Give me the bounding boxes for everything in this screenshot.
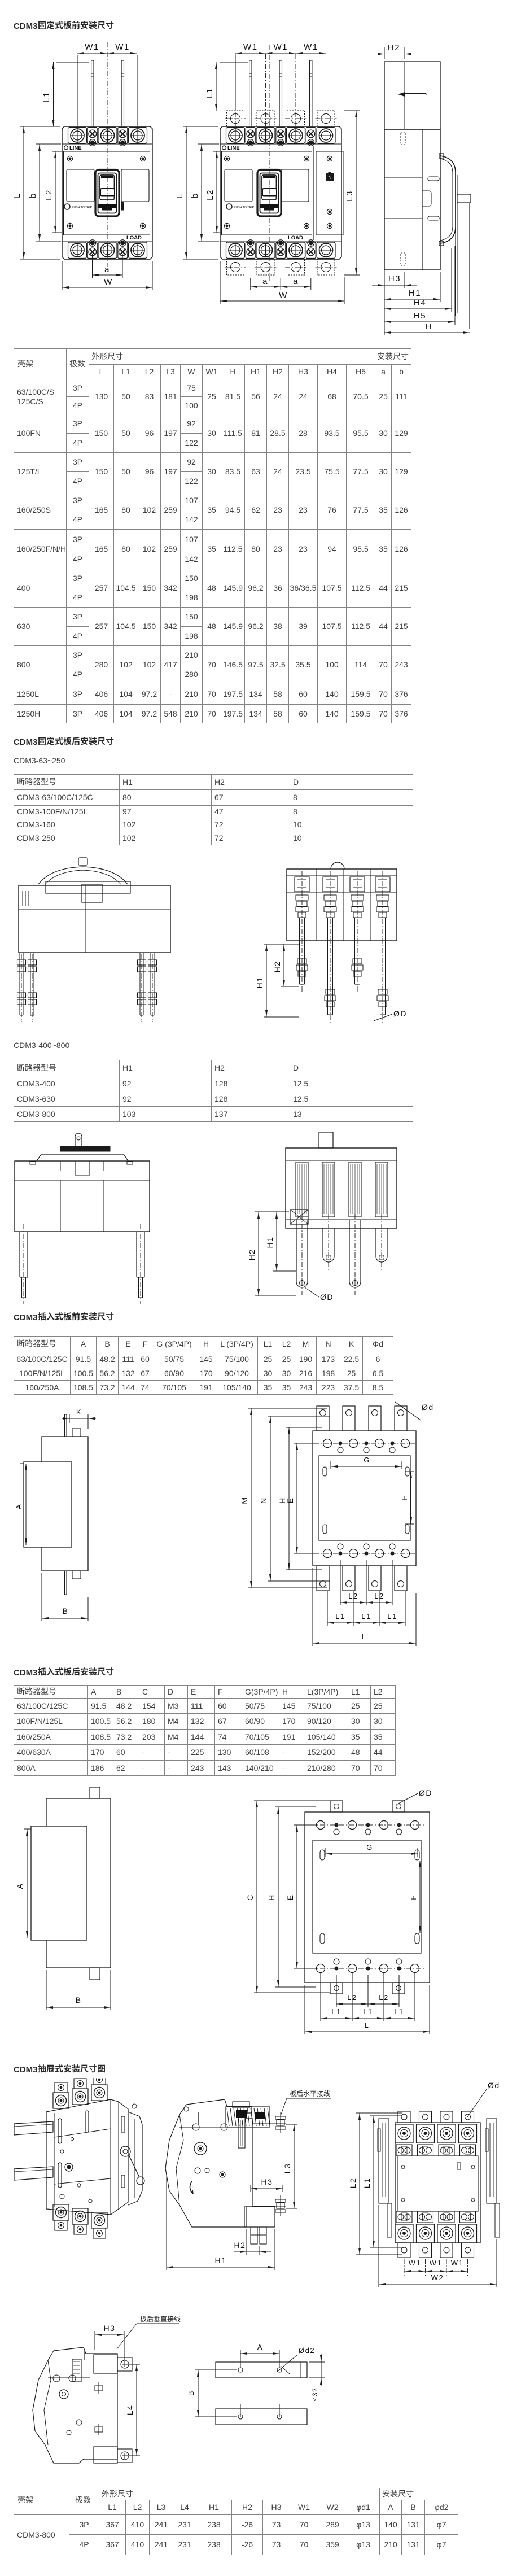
svg-text:K: K [76, 1408, 82, 1416]
svg-text:B: B [76, 1996, 82, 2005]
svg-text:W: W [104, 277, 113, 287]
svg-text:H2: H2 [388, 43, 400, 53]
svg-text:B: B [63, 1606, 69, 1616]
svg-text:L1: L1 [363, 2007, 373, 2016]
svg-text:W2: W2 [431, 2273, 444, 2282]
svg-text:W1: W1 [304, 42, 318, 52]
svg-text:L1: L1 [387, 1612, 397, 1621]
svg-text:LOAD: LOAD [126, 235, 142, 241]
svg-text:N: N [259, 1497, 268, 1504]
svg-text:L: L [12, 193, 22, 198]
svg-text:H3: H3 [104, 2324, 116, 2333]
svg-text:H1: H1 [409, 289, 421, 298]
svg-text:Ød: Ød [422, 1403, 434, 1412]
svg-text:Ød: Ød [488, 2081, 500, 2090]
svg-text:H: H [267, 1894, 276, 1901]
svg-text:ØD: ØD [393, 1009, 407, 1018]
svg-text:L: L [175, 193, 185, 198]
svg-text:L1: L1 [362, 2178, 371, 2189]
svg-text:L3: L3 [283, 2163, 292, 2174]
svg-text:W1: W1 [243, 42, 258, 52]
svg-text:L1: L1 [394, 2007, 404, 2016]
svg-text:a: a [104, 265, 110, 274]
svg-text:F: F [400, 1495, 409, 1500]
svg-text:a: a [293, 277, 299, 286]
svg-text:H2: H2 [247, 1249, 256, 1261]
svg-text:H1: H1 [215, 2256, 227, 2265]
svg-text:L1: L1 [331, 2007, 341, 2016]
svg-text:N: N [329, 175, 332, 180]
svg-text:PUSH TO TRIP: PUSH TO TRIP [72, 206, 93, 209]
svg-text:H1: H1 [265, 1237, 274, 1248]
svg-text:L2: L2 [348, 2178, 357, 2189]
svg-text:L2: L2 [205, 189, 215, 200]
svg-text:L: L [365, 2021, 370, 2029]
svg-text:W1: W1 [409, 2259, 422, 2267]
svg-text:W1: W1 [85, 42, 99, 52]
svg-text:ØD: ØD [419, 1788, 432, 1797]
svg-text:L1: L1 [335, 1612, 345, 1621]
svg-text:E: E [286, 1497, 295, 1504]
svg-text:F: F [409, 1894, 418, 1900]
svg-text:A: A [14, 1504, 23, 1510]
svg-text:L: L [362, 1632, 367, 1641]
svg-text:G: G [364, 1456, 370, 1464]
svg-text:L1: L1 [42, 91, 51, 103]
svg-text:L1: L1 [205, 88, 214, 99]
svg-text:L3: L3 [345, 190, 354, 202]
svg-text:W1: W1 [430, 2259, 443, 2267]
svg-text:L2: L2 [44, 189, 54, 200]
svg-text:a: a [262, 277, 268, 286]
svg-text:b: b [28, 193, 38, 198]
svg-text:B: B [187, 2390, 195, 2396]
svg-text:LOAD: LOAD [288, 235, 303, 241]
svg-text:M: M [240, 1496, 249, 1504]
svg-text:H3: H3 [261, 2177, 273, 2186]
svg-text:E: E [286, 1894, 295, 1901]
svg-text:C: C [246, 1894, 255, 1901]
svg-text:A: A [15, 1883, 24, 1889]
svg-text:L1: L1 [361, 1612, 371, 1621]
svg-text:W: W [279, 291, 288, 300]
svg-text:H2: H2 [273, 961, 282, 973]
svg-text:b: b [190, 193, 200, 198]
svg-text:PUSH TO TRIP: PUSH TO TRIP [234, 206, 255, 209]
svg-text:Ød2: Ød2 [299, 2346, 315, 2355]
svg-text:W1: W1 [273, 42, 288, 52]
svg-text:A: A [257, 2343, 263, 2351]
svg-text:H4: H4 [414, 298, 426, 308]
svg-text:≤32: ≤32 [311, 2387, 319, 2401]
svg-text:LINE: LINE [69, 145, 82, 151]
svg-text:H3: H3 [388, 274, 401, 283]
svg-text:W1: W1 [451, 2259, 464, 2267]
svg-text:W1: W1 [115, 42, 130, 52]
svg-text:LINE: LINE [227, 145, 240, 151]
svg-text:H2: H2 [234, 2241, 246, 2250]
svg-text:G: G [366, 1843, 373, 1852]
svg-text:H1: H1 [255, 977, 264, 989]
svg-text:ØD: ØD [320, 1293, 334, 1302]
svg-text:H: H [426, 322, 432, 331]
svg-text:L4: L4 [125, 2405, 134, 2416]
svg-text:H5: H5 [414, 311, 426, 321]
